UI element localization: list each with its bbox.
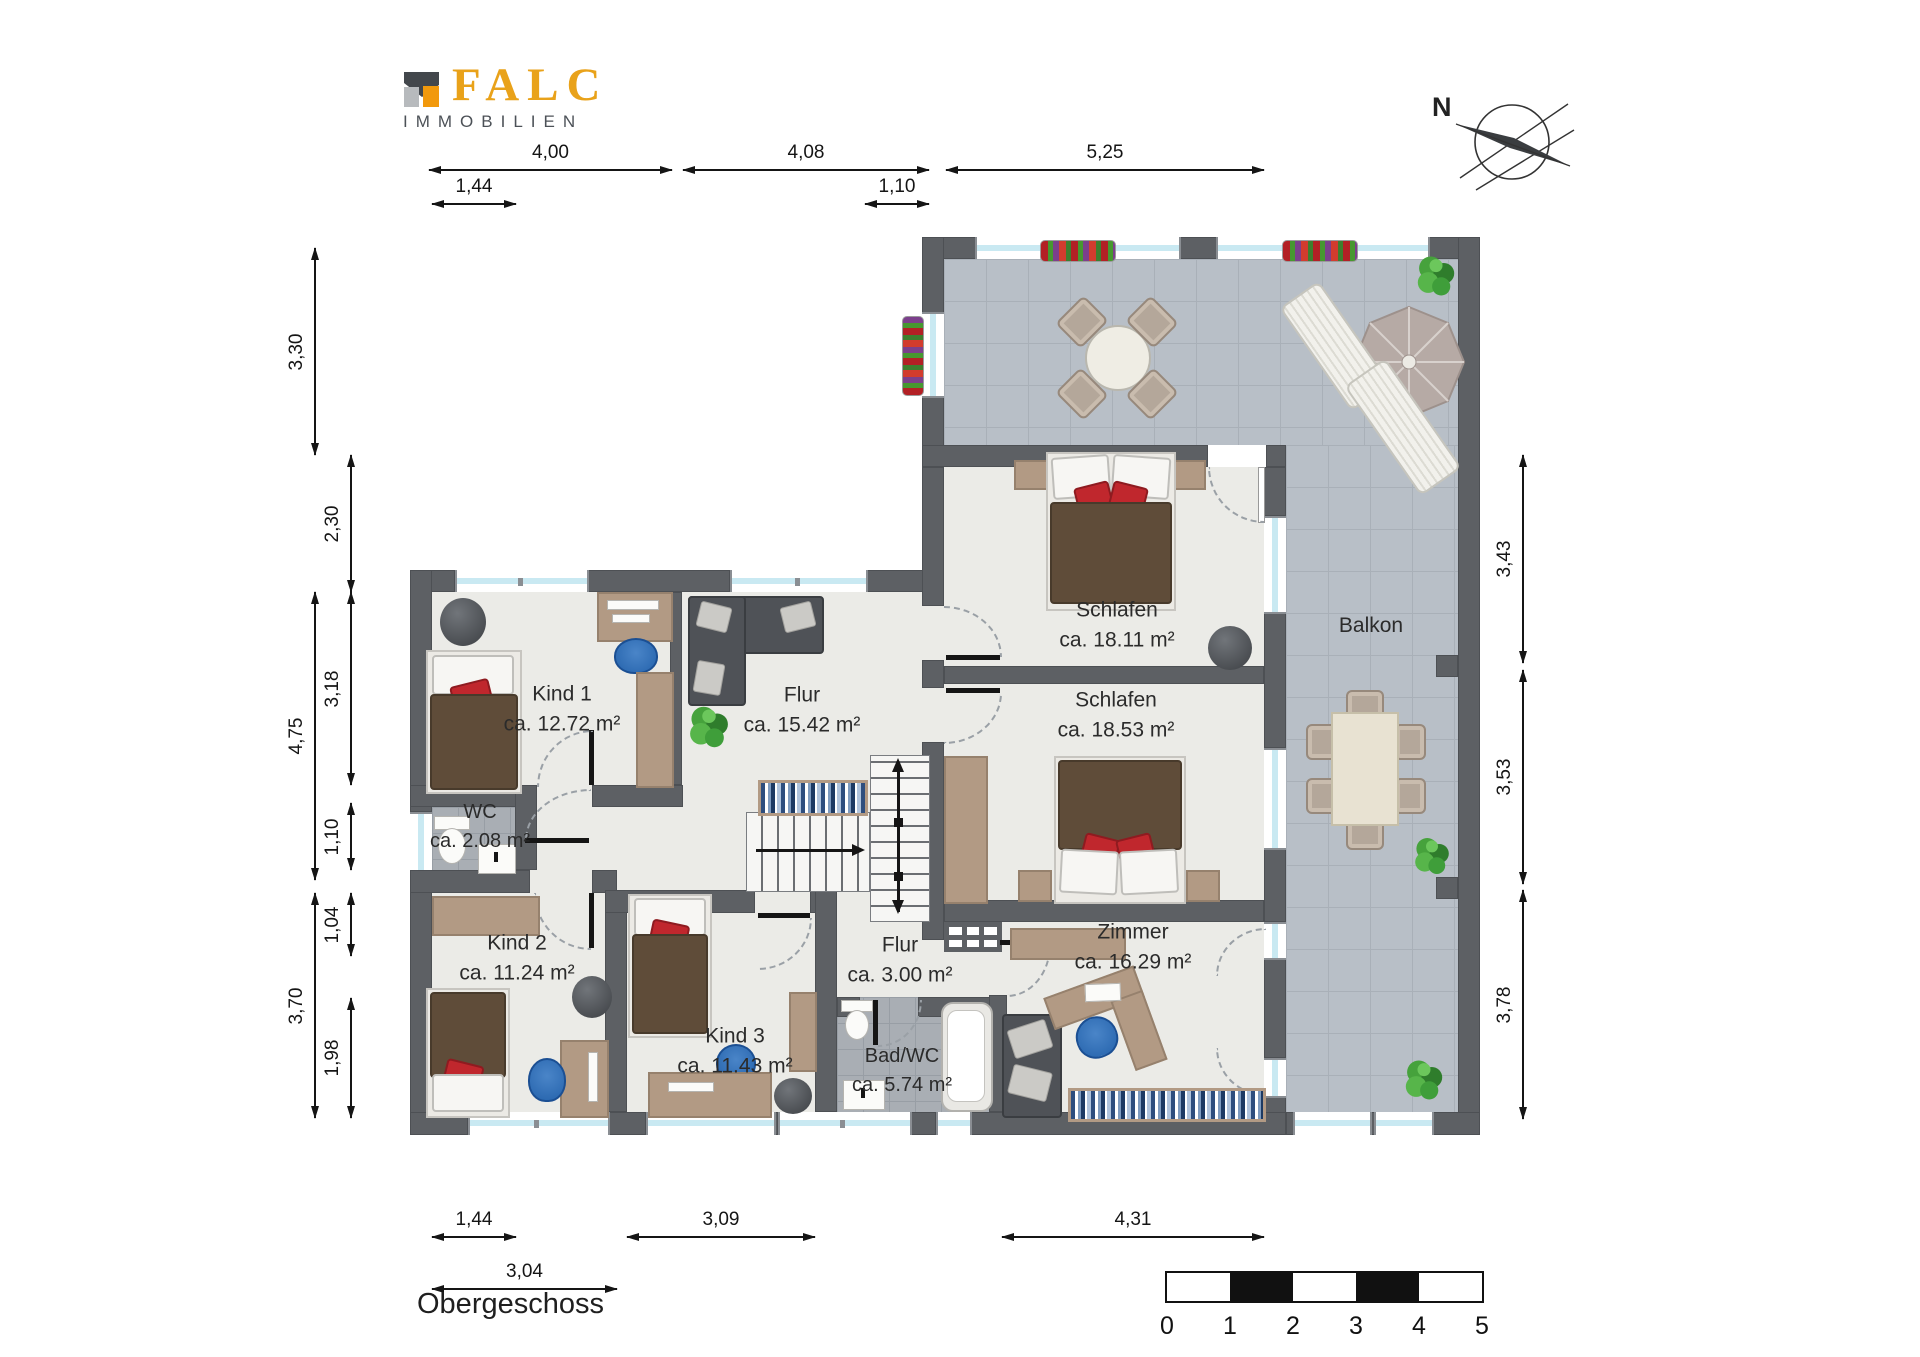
room-name: Bad/WC: [852, 1042, 952, 1071]
room-area: ca. 5.74 m²: [852, 1071, 952, 1100]
wall: [944, 666, 1264, 684]
desk-monitor: [588, 1052, 598, 1102]
room-area: ca. 11.43 m²: [677, 1052, 792, 1082]
room-area: ca. 18.53 m²: [1058, 716, 1175, 746]
dimension-label: 1,44: [456, 176, 493, 198]
window-post: [534, 1120, 539, 1128]
stair-arrow-up-icon: [892, 758, 904, 772]
nightstand: [1018, 870, 1052, 902]
room-area: ca. 2.08 m²: [430, 827, 530, 856]
plant: [1410, 250, 1462, 302]
wardrobe: [636, 672, 674, 788]
flower-box: [1282, 240, 1358, 262]
dimension-label: 1,04: [322, 906, 344, 943]
wall: [592, 785, 683, 807]
dimension: 3,09: [627, 1230, 815, 1244]
beanbag: [774, 1078, 812, 1114]
scale-tick: 2: [1286, 1312, 1300, 1341]
scale-segment: [1167, 1273, 1230, 1301]
stair-arrow-right-icon: [852, 844, 865, 856]
window: [936, 1112, 972, 1135]
bed-duvet: [632, 934, 708, 1034]
dimension: 4,08: [683, 163, 929, 177]
scale-segment: [1419, 1273, 1482, 1301]
room-name: Zimmer: [1075, 918, 1192, 948]
wall: [1436, 655, 1458, 677]
flower-box: [902, 316, 924, 396]
window: [410, 812, 432, 872]
bookshelf: [758, 780, 868, 816]
desk: [560, 1040, 609, 1118]
room-name: WC: [430, 798, 530, 827]
room-label-schlafen2: Schlafen ca. 18.53 m²: [1058, 686, 1175, 747]
nightstand: [1172, 460, 1206, 490]
dimension-label: 3,30: [286, 333, 308, 370]
room-label-zimmer: Zimmer ca. 16.29 m²: [1075, 918, 1192, 979]
falc-logo-mark-icon: [402, 70, 442, 112]
window-post: [840, 1120, 845, 1128]
dimension: 3,43: [1516, 455, 1530, 663]
room-label-flur2: Flur ca. 3.00 m²: [847, 931, 952, 992]
scale-tick: 1: [1223, 1312, 1237, 1341]
dimension-label: 1,10: [879, 176, 916, 198]
wall: [1266, 445, 1286, 467]
scale-bar: [1165, 1271, 1484, 1303]
window: [778, 1112, 912, 1135]
dimension: 3,18: [344, 592, 358, 785]
wall: [922, 467, 944, 606]
desk-keyboard: [612, 614, 650, 623]
room-area: ca. 15.42 m²: [744, 711, 861, 741]
dimension-label: 1,44: [456, 1209, 493, 1231]
desk-monitor: [1085, 983, 1122, 1002]
stair-direction-line: [897, 766, 900, 912]
room-area: ca. 16.29 m²: [1075, 948, 1192, 978]
balcony-door-glass: [1264, 748, 1286, 850]
bed-pillow: [1059, 849, 1119, 896]
wall: [1436, 877, 1458, 899]
bathtub-inner: [947, 1010, 985, 1102]
flower-box: [1040, 240, 1116, 262]
wardrobe: [944, 756, 988, 904]
brand-subtitle: IMMOBILIEN: [403, 112, 583, 132]
wall: [1264, 467, 1286, 516]
floor-title: Obergeschoss: [417, 1288, 604, 1321]
dimension: 4,75: [308, 592, 322, 880]
dimension: 1,10: [344, 803, 358, 870]
room-label-kind2: Kind 2 ca. 11.24 m²: [459, 929, 574, 990]
room-area: ca. 18.11 m²: [1059, 626, 1174, 656]
scale-segment: [1293, 1273, 1356, 1301]
plant: [682, 698, 736, 756]
dimension: 5,25: [946, 163, 1264, 177]
window-post: [795, 578, 800, 586]
room-area: ca. 3.00 m²: [847, 961, 952, 991]
stair-node: [894, 818, 903, 827]
bed-duvet: [1058, 760, 1182, 850]
room-area: ca. 12.72 m²: [504, 710, 621, 740]
wall: [1264, 846, 1286, 922]
wall: [585, 570, 730, 592]
wall: [815, 890, 837, 1112]
dimension: 1,04: [344, 893, 358, 956]
room-name: Flur: [847, 931, 952, 961]
brand-name: FALC: [452, 58, 608, 112]
room-name: Kind 2: [459, 929, 574, 959]
bed-pillow: [1119, 849, 1179, 896]
dimension: 3,53: [1516, 670, 1530, 884]
dimension-label: 3,78: [1494, 986, 1516, 1023]
room-label-kind3: Kind 3 ca. 11.43 m²: [677, 1022, 792, 1083]
balcony-door-glass: [1264, 1058, 1286, 1098]
balcony-door-glass: [1264, 516, 1286, 614]
dimension-label: 3,43: [1494, 541, 1516, 578]
desk-keyboard: [668, 1082, 714, 1092]
scale-tick: 4: [1412, 1312, 1426, 1341]
dimension: 2,30: [344, 455, 358, 592]
room-name: Flur: [744, 681, 861, 711]
stair-direction-line: [756, 849, 856, 852]
room-name: Balkon: [1339, 611, 1403, 641]
room-label-flur: Flur ca. 15.42 m²: [744, 681, 861, 742]
room-name: Schlafen: [1058, 686, 1175, 716]
plant: [1408, 832, 1456, 880]
dimension: 3,78: [1516, 890, 1530, 1119]
bed-pillow: [432, 1074, 504, 1112]
balcony-door-glass: [1264, 922, 1286, 960]
dimension-label: 5,25: [1087, 142, 1124, 164]
dimension: 3,30: [308, 248, 322, 455]
scale-segment: [1356, 1273, 1419, 1301]
dimension: 3,70: [308, 893, 322, 1118]
wall: [1264, 956, 1286, 1058]
dimension-label: 4,31: [1115, 1209, 1152, 1231]
room-area: ca. 11.24 m²: [459, 959, 574, 989]
desk-chair: [614, 638, 658, 674]
scale-tick: 0: [1160, 1312, 1174, 1341]
room-label-bad: Bad/WC ca. 5.74 m²: [852, 1042, 952, 1100]
dimension: 4,00: [429, 163, 672, 177]
wall: [908, 1112, 936, 1135]
dimension-label: 4,08: [788, 142, 825, 164]
beanbag: [1208, 626, 1252, 670]
balcony-railing: [1374, 1112, 1434, 1135]
toilet: [845, 1010, 869, 1040]
dining-table: [1331, 712, 1399, 826]
bookshelf: [1068, 1088, 1266, 1122]
dimension-label: 3,53: [1494, 759, 1516, 796]
stair-arrow-down-icon: [892, 900, 904, 914]
dimension-label: 3,09: [703, 1209, 740, 1231]
dimension-label: 1,98: [322, 1040, 344, 1077]
dimension: 1,98: [344, 998, 358, 1118]
dimension-label: 2,30: [322, 505, 344, 542]
dimension-label: 3,04: [506, 1261, 543, 1283]
dimension-label: 4,00: [532, 142, 569, 164]
beanbag: [440, 598, 486, 646]
room-label-kind1: Kind 1 ca. 12.72 m²: [504, 680, 621, 741]
dimension: 1,44: [432, 1230, 516, 1244]
dimension: 1,44: [432, 197, 516, 211]
scale-segment: [1230, 1273, 1293, 1301]
wall: [1264, 610, 1286, 748]
scale-tick: 5: [1475, 1312, 1489, 1341]
stair-node: [894, 872, 903, 881]
dimension: 4,31: [1002, 1230, 1264, 1244]
dimension-label: 3,70: [286, 987, 308, 1024]
nightstand: [1186, 870, 1220, 902]
room-label-schlafen1: Schlafen ca. 18.11 m²: [1059, 596, 1174, 657]
nightstand: [1014, 460, 1048, 490]
beanbag: [572, 976, 612, 1018]
scale-tick: 3: [1349, 1312, 1363, 1341]
stair-railing: [944, 922, 1002, 952]
bed-duvet: [1050, 502, 1172, 604]
sofa-pillow: [692, 660, 725, 696]
wall: [922, 660, 944, 688]
plant: [1398, 1054, 1450, 1106]
desk-monitor: [607, 600, 659, 610]
desk-chair: [528, 1058, 566, 1102]
floorplan-page: { "brand": {"name": "FALC", "subtitle": …: [0, 0, 1920, 1357]
dimension-label: 4,75: [286, 718, 308, 755]
window-post: [518, 578, 523, 586]
room-name: Kind 1: [504, 680, 621, 710]
scale-numbers: 0 1 2 3 4 5: [1167, 1312, 1482, 1342]
compass-icon: [1448, 92, 1578, 202]
window: [922, 312, 944, 398]
room-name: Kind 3: [677, 1022, 792, 1052]
room-label-balkon: Balkon: [1339, 611, 1403, 641]
wardrobe: [789, 992, 817, 1072]
room-label-wc: WC ca. 2.08 m²: [430, 798, 530, 856]
wall: [606, 1112, 646, 1135]
stairs-upper-flight: [870, 755, 930, 922]
balcony-railing: [1293, 1112, 1372, 1135]
dimension-label: 3,18: [322, 670, 344, 707]
dimension-label: 1,10: [322, 818, 344, 855]
room-name: Schlafen: [1059, 596, 1174, 626]
dimension: 1,10: [865, 197, 929, 211]
